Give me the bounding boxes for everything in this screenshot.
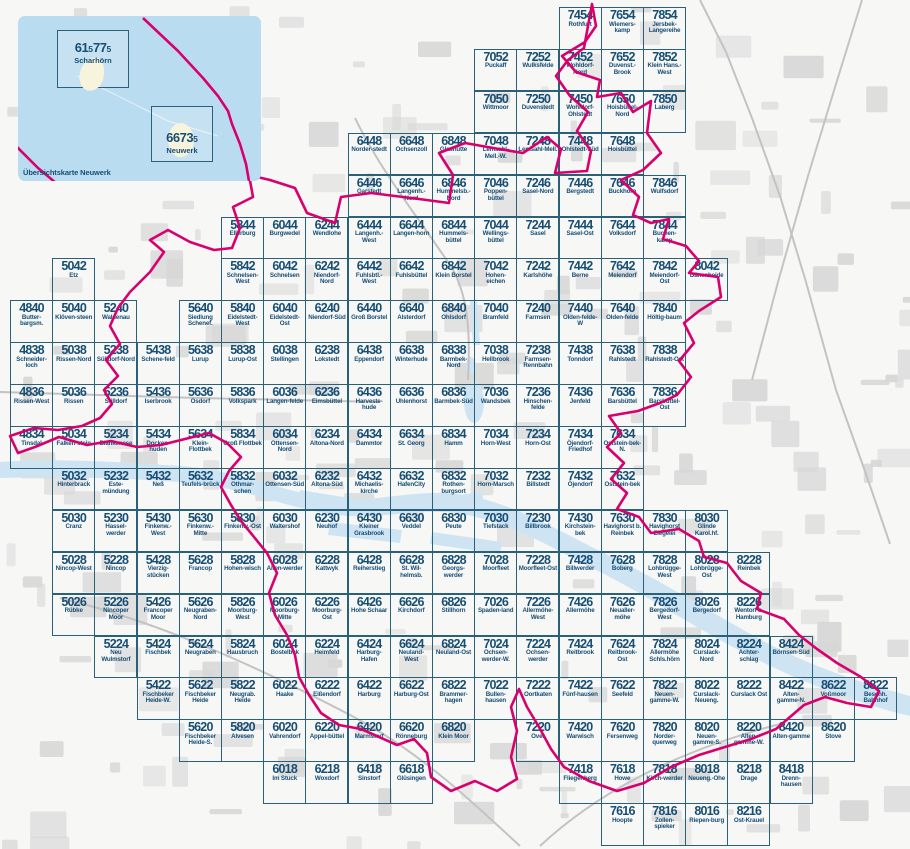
map-sheet-tile-7822[interactable]: 7822Neuen-gamme-W. (643, 677, 686, 720)
map-sheet-tile-5230[interactable]: 5230Hassel-werder (94, 510, 137, 553)
sheet-name: Norder-querweg (644, 734, 685, 747)
sheet-name: Ochsen-werder (517, 650, 558, 663)
map-sheet-tile-7426[interactable]: 7426Allermöhe (559, 594, 602, 637)
sheet-name: Wulfsdorf (644, 189, 685, 196)
map-sheet-tile-7448[interactable]: 7448Ohlstedt-Süd (559, 133, 602, 176)
sheet-name: Ottensen-Süd (264, 482, 305, 489)
map-sheet-tile-6238[interactable]: 6238Lokstedt (305, 342, 348, 385)
map-sheet-tile-6830[interactable]: 6830Peute (432, 510, 475, 553)
map-sheet-tile-7248[interactable]: 7248Lemsahl-Mell. (516, 133, 559, 176)
map-sheet-tile-7626[interactable]: 7626Neualler-möhe (601, 594, 644, 637)
map-sheet-tile-6018[interactable]: 6018Im Stuck (263, 761, 306, 804)
map-sheet-tile-4838[interactable]: 4838Schneider-loch (10, 342, 53, 385)
map-sheet-tile-6840[interactable]: 6840Ohlsdorf (432, 300, 475, 343)
sheet-number: 5238 (95, 344, 136, 357)
map-sheet-tile-7628[interactable]: 7628Boberg (601, 552, 644, 595)
sheet-number: 7640 (602, 302, 643, 315)
map-sheet-tile-6232[interactable]: 6232Altona-Süd (305, 468, 348, 511)
map-sheet-tile-6822[interactable]: 6822Brammer-hagen (432, 677, 475, 720)
map-sheet-tile-6648[interactable]: 6648Ochsenzoll (390, 133, 433, 176)
map-sheet-tile-7640[interactable]: 7640Olden-felde (601, 300, 644, 343)
map-sheet-tile-7032[interactable]: 7032Horn-Marsch (474, 468, 517, 511)
map-sheet-tile-6438[interactable]: 6438Eppendorf (348, 342, 391, 385)
map-sheet-tile-5438[interactable]: 5438Schene-feld (137, 342, 180, 385)
sheet-name: Glinde Karol.hf. (686, 524, 727, 537)
map-sheet-tile-7232[interactable]: 7232Billstedt (516, 468, 559, 511)
sheet-name: Ottensen-Nord (264, 441, 305, 454)
sheet-name: Harburg-Hafen (349, 650, 390, 663)
sheet-name: Nincop-West (53, 566, 94, 573)
map-sheet-tile-5822[interactable]: 5822Neugrab. Heide (221, 677, 264, 720)
map-sheet-tile-7422[interactable]: 7422Fünf-hausen (559, 677, 602, 720)
map-sheet-tile-8220[interactable]: 8220Alten-gamme-W. (727, 719, 770, 762)
map-sheet-tile-6244[interactable]: 6244Wendlohe (305, 217, 348, 260)
sheet-number: 6420 (349, 721, 390, 734)
map-sheet-tile-5626[interactable]: 5626Neugraben-Nord (179, 594, 222, 637)
map-sheet-tile-7034[interactable]: 7034Horn-West (474, 426, 517, 469)
map-sheet-tile-7622[interactable]: 7622Seefeld (601, 677, 644, 720)
map-sheet-tile-7024[interactable]: 7024Ochsen-werder-W. (474, 636, 517, 679)
sheet-number: 6436 (349, 386, 390, 399)
map-sheet-tile-6440[interactable]: 6440Groß Borstel (348, 300, 391, 343)
map-sheet-tile-5836[interactable]: 5836Volkspark (221, 384, 264, 427)
map-sheet-tile-8030[interactable]: 8030Glinde Karol.hf. (685, 510, 728, 553)
sheet-number: 7638 (602, 344, 643, 357)
inset-sheet-scharhoern[interactable]: 615775 Scharhörn (57, 30, 129, 88)
sheet-name: Langen-felde (264, 399, 305, 406)
map-sheet-tile-6444[interactable]: 6444Langenh.-West (348, 217, 391, 260)
map-sheet-tile-8026[interactable]: 8026Bergedorf (685, 594, 728, 637)
sheet-number: 7418 (560, 763, 601, 776)
map-sheet-tile-6242[interactable]: 6242Niendorf-Nord (305, 258, 348, 301)
map-sheet-tile-7440[interactable]: 7440Olden-felde-W (559, 300, 602, 343)
map-sheet-tile-5630[interactable]: 5630Finkenw.-Mitte (179, 510, 222, 553)
map-sheet-tile-6620[interactable]: 6620Rönneburg (390, 719, 433, 762)
sheet-number: 6820 (433, 721, 474, 734)
map-sheet-tile-7818[interactable]: 7818Kirch-werder (643, 761, 686, 804)
sheet-name: Sülldorf (95, 399, 136, 406)
map-sheet-tile-7442[interactable]: 7442Berne (559, 258, 602, 301)
map-sheet-tile-5426[interactable]: 5426Francoper Moor (137, 594, 180, 637)
map-sheet-tile-6628[interactable]: 6628St. Wil-helmsb. (390, 552, 433, 595)
map-sheet-tile-6824[interactable]: 6824Neuland-Ost (432, 636, 475, 679)
map-sheet-tile-8218[interactable]: 8218Drage (727, 761, 770, 804)
map-sheet-tile-8424[interactable]: 8424Börnsen-Süd (770, 636, 813, 679)
map-sheet-tile-6422[interactable]: 6422Harburg (348, 677, 391, 720)
map-sheet-tile-8228[interactable]: 8228Reinbek (727, 552, 770, 595)
sheet-name: Alvesen (222, 734, 263, 741)
map-sheet-tile-7230[interactable]: 7230Billbrook (516, 510, 559, 553)
map-sheet-tile-5820[interactable]: 5820Alvesen (221, 719, 264, 762)
map-sheet-tile-5224[interactable]: 5224Neu Wulmstorf (94, 636, 137, 679)
map-sheet-tile-8042[interactable]: 8042Dänenheide (685, 258, 728, 301)
sheet-name: Sülldorf-Nord (95, 357, 136, 364)
map-sheet-tile-7642[interactable]: 7642Meiendorf (601, 258, 644, 301)
map-sheet-tile-6434[interactable]: 6434Dammtor (348, 426, 391, 469)
map-sheet-tile-8422[interactable]: 8422Alten-gamme-N. (770, 677, 813, 720)
map-sheet-tile-7240[interactable]: 7240Farmsen (516, 300, 559, 343)
map-sheet-tile-7242[interactable]: 7242Karlshöhe (516, 258, 559, 301)
map-sheet-tile-7418[interactable]: 7418Fliegenberg (559, 761, 602, 804)
map-sheet-tile-6846[interactable]: 6846Hummelsb.-Nord (432, 175, 475, 218)
sheet-number: 5240 (95, 302, 136, 315)
map-sheet-tile-7246[interactable]: 7246Sasel-Nord (516, 175, 559, 218)
map-sheet-tile-5842[interactable]: 5842Schnelsen-West (221, 258, 264, 301)
map-sheet-tile-7854[interactable]: 7854Jersbek-Langereihe (643, 7, 686, 50)
map-sheet-tile-8622[interactable]: 8622Voßmoor (812, 677, 855, 720)
sheet-number: 7654 (602, 9, 643, 22)
inset-sheet-neuwerk[interactable]: 66735 Neuwerk (151, 106, 213, 162)
sheet-name: Haake (264, 692, 305, 699)
map-sheet-tile-6220[interactable]: 6220Appel-büttel (305, 719, 348, 762)
map-sheet-tile-6630[interactable]: 6630Veddel (390, 510, 433, 553)
map-sheet-tile-7226[interactable]: 7226Allermöhe-West (516, 594, 559, 637)
map-sheet-tile-7038[interactable]: 7038Hellbrook (474, 342, 517, 385)
map-sheet-tile-7428[interactable]: 7428Billwerder (559, 552, 602, 595)
sheet-name: Neuland-West (391, 650, 432, 663)
map-sheet-tile-7238[interactable]: 7238Farmsen-Rennbahn (516, 342, 559, 385)
map-sheet-tile-7040[interactable]: 7040Bramfeld (474, 300, 517, 343)
map-sheet-tile-7648[interactable]: 7648Hoisbüttel (601, 133, 644, 176)
sheet-name: Blankenese (95, 441, 136, 448)
map-sheet-tile-5038[interactable]: 5038Rissen-Nord (52, 342, 95, 385)
map-sheet-tile-7030[interactable]: 7030Tiefstack (474, 510, 517, 553)
map-sheet-tile-7220[interactable]: 7220Over (516, 719, 559, 762)
map-sheet-tile-6420[interactable]: 6420Marmstorf (348, 719, 391, 762)
sheet-number: 7818 (644, 763, 685, 776)
map-sheet-tile-8216[interactable]: 8216Ost-Krauel (727, 803, 770, 846)
sheet-name: Zollen-spieker (644, 818, 685, 831)
map-sheet-tile-8024[interactable]: 8024Curslack-Nord (685, 636, 728, 679)
sheet-number: 5236 (95, 386, 136, 399)
map-sheet-tile-5434[interactable]: 5434Docken-huden (137, 426, 180, 469)
map-sheet-tile-7616[interactable]: 7616Hoopte (601, 803, 644, 846)
sheet-number: 7234 (517, 428, 558, 441)
map-sheet-tile-5632[interactable]: 5632Teufels-brück (179, 468, 222, 511)
sheet-name: Lohbrügge-West (644, 566, 685, 579)
map-sheet-tile-6638[interactable]: 6638Winterhude (390, 342, 433, 385)
map-sheet-tile-6442[interactable]: 6442Fuhlsbtl.-West (348, 258, 391, 301)
sheet-name: Oortkaten (517, 692, 558, 699)
map-sheet-tile-6034[interactable]: 6034Ottensen-Nord (263, 426, 306, 469)
map-sheet-tile-5036[interactable]: 5036Rissen (52, 384, 95, 427)
map-sheet-tile-7842[interactable]: 7842Meiendorf-Ost (643, 258, 686, 301)
map-sheet-tile-7026[interactable]: 7026Spaden-land (474, 594, 517, 637)
map-sheet-tile-5226[interactable]: 5226Nincoper Moor (94, 594, 137, 637)
map-sheet-tile-8020[interactable]: 8020Neuen-gamme-S. (685, 719, 728, 762)
map-sheet-tile-6236[interactable]: 6236Eimsbüttel (305, 384, 348, 427)
sheet-name: Reiherstieg (349, 566, 390, 573)
map-sheet-tile-6642[interactable]: 6642Fuhlsbüttel (390, 258, 433, 301)
map-sheet-tile-6820[interactable]: 6820Klein Moor (432, 719, 475, 762)
sheet-number: 7238 (517, 344, 558, 357)
sheet-name: Glashütte (433, 147, 474, 154)
map-sheet-tile-6026[interactable]: 6026Moorburg-Mitte (263, 594, 306, 637)
map-sheet-tile-6448[interactable]: 6448Norder-stedt (348, 133, 391, 176)
map-sheet-tile-6836[interactable]: 6836Barmbek-Süd (432, 384, 475, 427)
map-sheet-tile-7844[interactable]: 7844Buchen-kamp (643, 217, 686, 260)
map-sheet-tile-5620[interactable]: 5620Fischbeker Heide-S. (179, 719, 222, 762)
map-sheet-tile-8620[interactable]: 8620Stove (812, 719, 855, 762)
map-sheet-tile-6432[interactable]: 6432Michaelis-kirche (348, 468, 391, 511)
map-sheet-tile-6038[interactable]: 6038Stellingen (263, 342, 306, 385)
map-sheet-tile-7636[interactable]: 7636Barsbüttel (601, 384, 644, 427)
map-sheet-tile-6634[interactable]: 6634St. Georg (390, 426, 433, 469)
map-sheet-tile-7452[interactable]: 7452Wohldorf-Nord (559, 49, 602, 92)
map-sheet-tile-7454[interactable]: 7454Rothfurt (559, 7, 602, 50)
map-sheet-tile-6646[interactable]: 6646Langenh.-Nord (390, 175, 433, 218)
sheet-name: Bergedorf-West (644, 608, 685, 621)
map-sheet-tile-6228[interactable]: 6228Kattwyk (305, 552, 348, 595)
sheet-name: Farmsen (517, 315, 558, 322)
map-sheet-tile-7646[interactable]: 7646Buckhorn (601, 175, 644, 218)
map-sheet-tile-6622[interactable]: 6622Harburg-Ost (390, 677, 433, 720)
sheet-number: 7236 (517, 386, 558, 399)
map-sheet-tile-5830[interactable]: 5830Finkenw.-Ost (221, 510, 264, 553)
map-sheet-tile-6044[interactable]: 6044Burgwedel (263, 217, 306, 260)
map-sheet-tile-7042[interactable]: 7042Hohen-eichen (474, 258, 517, 301)
map-sheet-tile-7250[interactable]: 7250Duvenstedt (516, 91, 559, 134)
map-sheet-tile-7836[interactable]: 7836Barsbüttel-Ost (643, 384, 686, 427)
map-sheet-tile-7634[interactable]: 7634Oststein-bek-N. (601, 426, 644, 469)
sheet-name: Neuhof (306, 524, 347, 531)
map-sheet-tile-5040[interactable]: 5040Klöven-steen (52, 300, 95, 343)
map-sheet-tile-6418[interactable]: 6418Sinstorf (348, 761, 391, 804)
map-sheet-tile-5622[interactable]: 5622Fischbeker Heide (179, 677, 222, 720)
map-sheet-tile-6430[interactable]: 6430Kleiner Grasbrook (348, 510, 391, 553)
map-sheet-tile-5828[interactable]: 5828Hohen-wisch (221, 552, 264, 595)
map-sheet-tile-5032[interactable]: 5032Hinterbrack (52, 468, 95, 511)
map-sheet-tile-7652[interactable]: 7652Duvenst.-Brook (601, 49, 644, 92)
map-sheet-tile-6446[interactable]: 6446Garstedt (348, 175, 391, 218)
map-sheet-tile-6020[interactable]: 6020Vahrendorf (263, 719, 306, 762)
map-sheet-tile-5840[interactable]: 5840Eidelstedt-West (221, 300, 264, 343)
map-sheet-tile-8418[interactable]: 8418Drenn-hausen (770, 761, 813, 804)
map-sheet-tile-6624[interactable]: 6624Neuland-West (390, 636, 433, 679)
sheet-name: Schnelsen-West (222, 273, 263, 286)
map-sheet-tile-6640[interactable]: 6640Alsterdorf (390, 300, 433, 343)
sheet-name: Warwisch (560, 734, 601, 741)
sheet-name: Barsbüttel (602, 399, 643, 406)
map-sheet-tile-5824[interactable]: 5824Hausbruch (221, 636, 264, 679)
map-sheet-tile-7644[interactable]: 7644Volksdorf (601, 217, 644, 260)
map-sheet-tile-5638[interactable]: 5638Lurup (179, 342, 222, 385)
map-sheet-tile-5628[interactable]: 5628Francop (179, 552, 222, 595)
map-sheet-tile-5844[interactable]: 5844Ellerburg (221, 217, 264, 260)
sheet-number: 6020 (264, 721, 305, 734)
map-sheet-tile-7434[interactable]: 7434Öjendorf-Friedhof (559, 426, 602, 469)
map-sheet-tile-7820[interactable]: 7820Norder-querweg (643, 719, 686, 762)
map-sheet-tile-7852[interactable]: 7852Klein Hans.-West (643, 49, 686, 92)
map-sheet-tile-6644[interactable]: 6644Langen-horn (390, 217, 433, 260)
map-sheet-tile-7224[interactable]: 7224Ochsen-werder (516, 636, 559, 679)
map-sheet-tile-7650[interactable]: 7650Hoisbüttel-Nord (601, 91, 644, 134)
map-sheet-tile-6632[interactable]: 6632HafenCity (390, 468, 433, 511)
map-sheet-tile-7044[interactable]: 7044Wellings-büttel (474, 217, 517, 260)
map-sheet-tile-6042[interactable]: 6042Schnelsen (263, 258, 306, 301)
sheet-name: Moorfleet (475, 566, 516, 573)
map-sheet-tile-7830[interactable]: 7830Havighorst Ziegelei (643, 510, 686, 553)
map-sheet-tile-6230[interactable]: 6230Neuhof (305, 510, 348, 553)
map-sheet-tile-7420[interactable]: 7420Warwisch (559, 719, 602, 762)
map-sheet-tile-5634[interactable]: 5634Klein-Flottbek (179, 426, 222, 469)
map-sheet-tile-7244[interactable]: 7244Sasel (516, 217, 559, 260)
map-sheet-tile-8222[interactable]: 8222Curslack Ost (727, 677, 770, 720)
map-sheet-tile-6848[interactable]: 6848Glashütte (432, 133, 475, 176)
map-sheet-tile-5834[interactable]: 5834Groß Flottbek (221, 426, 264, 469)
map-sheet-tile-7632[interactable]: 7632Oststein-bek (601, 468, 644, 511)
sheet-name: Iserbrook (138, 399, 179, 406)
map-sheet-tile-7618[interactable]: 7618Howe (601, 761, 644, 804)
map-sheet-tile-7252[interactable]: 7252Wulksfelde (516, 49, 559, 92)
map-sheet-tile-5238[interactable]: 5238Sülldorf-Nord (94, 342, 137, 385)
map-sheet-tile-5428[interactable]: 5428Vierzig-stücken (137, 552, 180, 595)
map-sheet-tile-7048[interactable]: 7048Lemsahl-Mell.-W. (474, 133, 517, 176)
map-sheet-tile-5422[interactable]: 5422Fischbeker Heide-W. (137, 677, 180, 720)
map-sheet-tile-6032[interactable]: 6032Ottensen-Süd (263, 468, 306, 511)
map-sheet-tile-7022[interactable]: 7022Bullen-hausen (474, 677, 517, 720)
map-sheet-tile-7654[interactable]: 7654Wiemers-kamp (601, 7, 644, 50)
map-sheet-tile-8028[interactable]: 8028Lohbrügge-Ost (685, 552, 728, 595)
map-sheet-tile-6036[interactable]: 6036Langen-felde (263, 384, 306, 427)
map-sheet-tile-7450[interactable]: 7450Wohldorf-Ohlstedt (559, 91, 602, 134)
map-sheet-tile-5228[interactable]: 5228Nincop (94, 552, 137, 595)
map-sheet-tile-5028[interactable]: 5028Nincop-West (52, 552, 95, 595)
map-sheet-tile-6618[interactable]: 6618Glüsingen (390, 761, 433, 804)
map-sheet-tile-7620[interactable]: 7620Fersenweg (601, 719, 644, 762)
map-sheet-tile-7828[interactable]: 7828Lohbrügge-West (643, 552, 686, 595)
map-sheet-tile-5624[interactable]: 5624Neugraben (179, 636, 222, 679)
map-sheet-tile-5838[interactable]: 5838Lurup-Ost (221, 342, 264, 385)
map-sheet-tile-5636[interactable]: 5636Osdorf (179, 384, 222, 427)
map-sheet-tile-6030[interactable]: 6030Waltershof (263, 510, 306, 553)
map-sheet-tile-6226[interactable]: 6226Moorburg-Ost (305, 594, 348, 637)
map-sheet-tile-7424[interactable]: 7424Reitbrook (559, 636, 602, 679)
map-sheet-tile-5430[interactable]: 5430Finkenw.-West (137, 510, 180, 553)
map-sheet-tile-7824[interactable]: 7824Allermöhe Schls.hörn (643, 636, 686, 679)
map-sheet-tile-5034[interactable]: 5034Falken-stein (52, 426, 95, 469)
map-sheet-tile-6428[interactable]: 6428Reiherstieg (348, 552, 391, 595)
map-sheet-tile-5236[interactable]: 5236Sülldorf (94, 384, 137, 427)
map-sheet-tile-6424[interactable]: 6424Harburg-Hafen (348, 636, 391, 679)
map-sheet-tile-7228[interactable]: 7228Moorfleet-Ost (516, 552, 559, 595)
map-sheet-tile-6040[interactable]: 6040Eidelstedt-Ost (263, 300, 306, 343)
map-sheet-tile-6834[interactable]: 6834Hamm (432, 426, 475, 469)
map-sheet-tile-6024[interactable]: 6024Bostelbek (263, 636, 306, 679)
map-sheet-tile-6844[interactable]: 6844Hummels-büttel (432, 217, 475, 260)
map-sheet-tile-7850[interactable]: 7850Laberg (643, 91, 686, 134)
sheet-number: 7420 (560, 721, 601, 734)
map-sheet-tile-6426[interactable]: 6426Hohe Schaar (348, 594, 391, 637)
map-sheet-tile-7638[interactable]: 7638Rahlstedt (601, 342, 644, 385)
map-sheet-tile-8420[interactable]: 8420Alten-gamme (770, 719, 813, 762)
sheet-number: 7038 (475, 344, 516, 357)
sheet-number: 7240 (517, 302, 558, 315)
sheet-name: Moorburg-West (222, 608, 263, 621)
map-sheet-tile-7444[interactable]: 7444Sasel-Ost (559, 217, 602, 260)
map-sheet-tile-7234[interactable]: 7234Horn-Ost (516, 426, 559, 469)
map-sheet-tile-7624[interactable]: 7624Reitbrook-Ost (601, 636, 644, 679)
map-sheet-tile-7840[interactable]: 7840Höltig-baum (643, 300, 686, 343)
map-sheet-tile-4836[interactable]: 4836Rissen-West (10, 384, 53, 427)
map-sheet-tile-6832[interactable]: 6832Rothen-burgsort (432, 468, 475, 511)
sheet-number: 6234 (306, 428, 347, 441)
sheet-name: Lokstedt (306, 357, 347, 364)
map-sheet-tile-7050[interactable]: 7050Wittmoor (474, 91, 517, 134)
map-sheet-tile-6022[interactable]: 6022Haake (263, 677, 306, 720)
map-sheet-tile-6222[interactable]: 6222Eißendorf (305, 677, 348, 720)
sheet-number: 7616 (602, 805, 643, 818)
map-sheet-tile-5232[interactable]: 5232Este-mündung (94, 468, 137, 511)
map-sheet-tile-7236[interactable]: 7236Hinschen-felde (516, 384, 559, 427)
map-sheet-tile-5026[interactable]: 5026Rübke (52, 594, 95, 637)
map-sheet-tile-5042[interactable]: 5042Etz (52, 258, 95, 301)
map-sheet-tile-7052[interactable]: 7052Puckaff (474, 49, 517, 92)
map-sheet-tile-6218[interactable]: 6218Woxdorf (305, 761, 348, 804)
map-sheet-tile-7222[interactable]: 7222Oortkaten (516, 677, 559, 720)
map-sheet-tile-7838[interactable]: 7838Rahlstedt-Ost (643, 342, 686, 385)
map-sheet-tile-7826[interactable]: 7826Bergedorf-West (643, 594, 686, 637)
map-sheet-tile-6626[interactable]: 6626Kirchdorf (390, 594, 433, 637)
map-sheet-tile-7630[interactable]: 7630Havighorst b. Reinbek (601, 510, 644, 553)
map-sheet-tile-6028[interactable]: 6028Alten-werder (263, 552, 306, 595)
map-sheet-tile-5826[interactable]: 5826Moorburg-West (221, 594, 264, 637)
map-sheet-tile-6828[interactable]: 6828Georgs-werder (432, 552, 475, 595)
map-sheet-tile-7036[interactable]: 7036Wandsbek (474, 384, 517, 427)
map-sheet-tile-6636[interactable]: 6636Uhlenhorst (390, 384, 433, 427)
map-sheet-tile-7438[interactable]: 7438Tonndorf (559, 342, 602, 385)
sheet-name: Klein-Flottbek (180, 441, 221, 454)
map-sheet-tile-7028[interactable]: 7028Moorfleet (474, 552, 517, 595)
sheet-number: 8418 (771, 763, 812, 776)
map-sheet-tile-7432[interactable]: 7432Öjendorf (559, 468, 602, 511)
map-sheet-tile-8226[interactable]: 8226Wentorf b. Hamburg (727, 594, 770, 637)
map-sheet-tile-5234[interactable]: 5234Blankenese (94, 426, 137, 469)
map-sheet-tile-7446[interactable]: 7446Bergstedt (559, 175, 602, 218)
map-sheet-tile-6224[interactable]: 6224Heimfeld (305, 636, 348, 679)
map-sheet-tile-6234[interactable]: 6234Altona-Nord (305, 426, 348, 469)
map-sheet-tile-5640[interactable]: 5640Siedlung Schenef. (179, 300, 222, 343)
map-sheet-tile-5424[interactable]: 5424Fischbek (137, 636, 180, 679)
map-sheet-tile-8022[interactable]: 8022Curslack-Neueng. (685, 677, 728, 720)
map-sheet-tile-4840[interactable]: 4840Butter-bargsm. (10, 300, 53, 343)
map-sheet-tile-7436[interactable]: 7436Jenfeld (559, 384, 602, 427)
map-sheet-tile-7046[interactable]: 7046Poppen-büttel (474, 175, 517, 218)
sheet-number: 5620 (180, 721, 221, 734)
map-sheet-tile-5240[interactable]: 5240Waldenau (94, 300, 137, 343)
map-sheet-tile-5432[interactable]: 5432Neß (137, 468, 180, 511)
map-sheet-tile-8224[interactable]: 8224Achter-schlag (727, 636, 770, 679)
map-sheet-tile-6838[interactable]: 6838Barmbek-Nord (432, 342, 475, 385)
map-sheet-tile-4834[interactable]: 4834Tinsdal (10, 426, 53, 469)
map-sheet-tile-6842[interactable]: 6842Klein Borstel (432, 258, 475, 301)
map-sheet-tile-6436[interactable]: 6436Harveste-hude (348, 384, 391, 427)
map-sheet-tile-5030[interactable]: 5030Cranz (52, 510, 95, 553)
map-sheet-tile-5832[interactable]: 5832Othmar-schen (221, 468, 264, 511)
map-sheet-tile-7846[interactable]: 7846Wulfsdorf (643, 175, 686, 218)
sheet-name: Hinterbrack (53, 482, 94, 489)
map-sheet-tile-5436[interactable]: 5436Iserbrook (137, 384, 180, 427)
map-sheet-tile-7816[interactable]: 7816Zollen-spieker (643, 803, 686, 846)
sheet-name: Rothfurt (560, 22, 601, 29)
map-sheet-tile-8822[interactable]: 8822Besenh. Bahnhof (854, 677, 897, 720)
map-sheet-tile-8016[interactable]: 8016Riepen-burg (685, 803, 728, 846)
map-sheet-tile-6826[interactable]: 6826Stillhorn (432, 594, 475, 637)
map-sheet-tile-6240[interactable]: 6240Niendorf-Süd (305, 300, 348, 343)
sheet-name: Vahrendorf (264, 734, 305, 741)
map-sheet-tile-8018[interactable]: 8018Neueng.-Ohe (685, 761, 728, 804)
map-sheet-tile-7430[interactable]: 7430Kirchstein-bek (559, 510, 602, 553)
